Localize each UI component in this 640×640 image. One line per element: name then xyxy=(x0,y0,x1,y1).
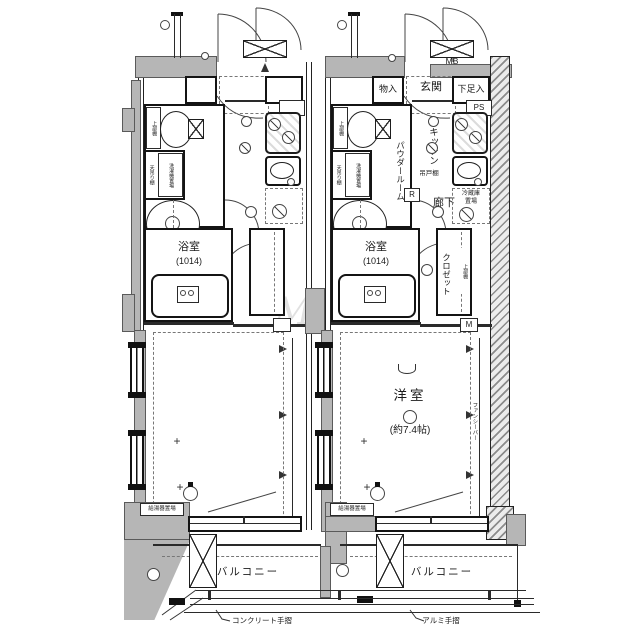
storage-box: 物入 xyxy=(372,76,404,104)
sliding-window xyxy=(188,516,302,532)
rail-bar xyxy=(169,598,185,605)
meter-box xyxy=(243,40,287,58)
genkan-floor xyxy=(219,76,269,114)
window xyxy=(317,434,331,486)
closet-shelf-line xyxy=(274,232,275,312)
balcony-slab-line xyxy=(340,544,518,546)
r-box: R xyxy=(404,188,420,202)
handrail-line xyxy=(190,604,534,605)
balcony-label: バルコニー xyxy=(216,565,280,580)
rail-post xyxy=(488,590,491,600)
window-cap xyxy=(128,484,146,490)
tub-knob xyxy=(367,290,373,296)
tub-knob xyxy=(188,290,194,296)
fridge-circle xyxy=(272,204,287,219)
wall-line-up xyxy=(351,14,352,58)
toilet-shelf: 上部棚 xyxy=(333,107,348,149)
water-heater-cap xyxy=(375,482,380,487)
water-heater-icon xyxy=(370,486,385,501)
m-box xyxy=(273,318,291,332)
meter-box-label: MB xyxy=(436,56,468,67)
sliding-window-rail xyxy=(377,523,487,524)
ceiling-light xyxy=(398,364,416,374)
wall-circle xyxy=(337,20,347,30)
floor-plan: MR xyxy=(0,0,640,640)
sash-line xyxy=(479,338,480,528)
wall-line-up xyxy=(180,14,181,58)
wall-mid-block xyxy=(305,288,325,334)
ac-outdoor-unit xyxy=(189,534,217,588)
window xyxy=(130,346,144,394)
burner xyxy=(469,131,482,144)
wall-tab xyxy=(122,294,135,332)
water-heater-label: 給湯器置場 xyxy=(140,503,184,516)
balcony-dashed xyxy=(350,556,512,557)
bath-size: (1014) xyxy=(163,256,215,268)
wall-br xyxy=(506,514,526,546)
ceiling-shelf-label: 天吊り棚 xyxy=(332,153,344,197)
wall-right-hatched xyxy=(490,56,510,508)
entry-triangle xyxy=(261,63,269,72)
rail-post xyxy=(338,590,341,600)
handrail-label: アルミ手摺 xyxy=(412,615,470,627)
wall-line-up xyxy=(174,14,175,58)
wall-cut-cap xyxy=(171,12,183,16)
m-box: M xyxy=(460,318,478,332)
toilet-shelf: 上部棚 xyxy=(146,107,161,149)
toilet-tank xyxy=(375,119,391,139)
wall-cut-cap xyxy=(348,12,360,16)
faucet xyxy=(474,178,482,186)
fixture-circle xyxy=(241,116,252,127)
window-cap xyxy=(315,392,333,398)
wall-closet-bottom xyxy=(233,324,305,327)
rail-post xyxy=(208,590,211,600)
parapet-diagonal xyxy=(124,540,190,620)
room-boundary xyxy=(153,332,284,529)
window-cap xyxy=(128,392,146,398)
room-label: 洋室 xyxy=(384,386,436,406)
bath-label: 浴室 xyxy=(353,241,399,255)
sliding-window-tick xyxy=(243,516,245,523)
wall-bath-bottom xyxy=(144,322,234,325)
drain xyxy=(147,568,160,581)
handrail-label: コンクリート手摺 xyxy=(220,615,304,627)
wall-line-up xyxy=(357,14,358,58)
entrance-label: 玄関 xyxy=(408,80,454,96)
drain xyxy=(336,564,349,577)
fixture-circle xyxy=(428,116,439,127)
plus-mark: + xyxy=(171,434,183,448)
powder-room-label: パウダールーム xyxy=(393,110,407,232)
burner xyxy=(268,118,281,131)
balcony-edge-line xyxy=(517,546,518,602)
wall-circle xyxy=(160,20,170,30)
closet xyxy=(249,228,285,316)
fixture-circle xyxy=(421,264,433,276)
wall-tab xyxy=(122,108,135,132)
ac-outdoor-unit xyxy=(376,534,404,588)
sliding-window-tick xyxy=(430,516,432,523)
ceiling-shelf-label: 天吊り棚 xyxy=(145,153,157,197)
fridge-label-bottom: 置場 xyxy=(456,198,486,207)
faucet xyxy=(287,178,295,186)
hanging-cupboard-label: 吊戸棚 xyxy=(414,169,444,180)
wall-bottom-band xyxy=(325,516,377,532)
fancy-bar-label: ファンシーバー xyxy=(468,374,479,468)
washer-label: 洗濯機置場 xyxy=(158,153,183,197)
handrail-line xyxy=(190,598,534,599)
fridge-circle xyxy=(459,207,474,222)
wall-circle xyxy=(201,52,209,60)
burner xyxy=(455,118,468,131)
sash-line xyxy=(292,338,293,528)
room-size-label: (約7.4帖) xyxy=(368,424,452,439)
wall-circle xyxy=(388,54,396,62)
fixture-circle xyxy=(239,142,251,154)
balcony-label: バルコニー xyxy=(410,565,474,580)
water-heater-icon xyxy=(183,486,198,501)
upper-shelf-label: 上部棚 xyxy=(459,248,470,294)
water-heater-label: 給湯器置場 xyxy=(330,503,374,516)
handrail-line xyxy=(196,590,526,591)
wall-closet-bottom xyxy=(420,324,492,327)
sliding-window-rail xyxy=(190,523,300,524)
window-cap xyxy=(315,484,333,490)
window xyxy=(317,346,331,394)
handrail-line xyxy=(184,612,540,613)
sink-bowl xyxy=(270,162,294,179)
balcony-dashed xyxy=(162,556,318,557)
water-heater-cap xyxy=(188,482,193,487)
burner xyxy=(282,131,295,144)
sink-bowl xyxy=(457,162,481,179)
tub-knob xyxy=(180,290,186,296)
sliding-window xyxy=(375,516,489,532)
fixture-circle xyxy=(432,206,444,218)
fixture-circle xyxy=(403,410,417,424)
fixture-circle xyxy=(426,142,438,154)
window xyxy=(130,434,144,486)
fixture-circle xyxy=(245,206,257,218)
toilet-tank xyxy=(188,119,204,139)
washer-label: 洗濯機置場 xyxy=(345,153,370,197)
storage-box xyxy=(185,76,217,104)
wall-bath-bottom xyxy=(331,322,421,325)
bath-size: (1014) xyxy=(350,256,402,268)
balcony-slab-line xyxy=(153,544,321,546)
tub-knob xyxy=(375,290,381,296)
closet-label: クロゼット xyxy=(438,238,454,310)
bath-label: 浴室 xyxy=(166,241,212,255)
plus-mark: + xyxy=(358,434,370,448)
